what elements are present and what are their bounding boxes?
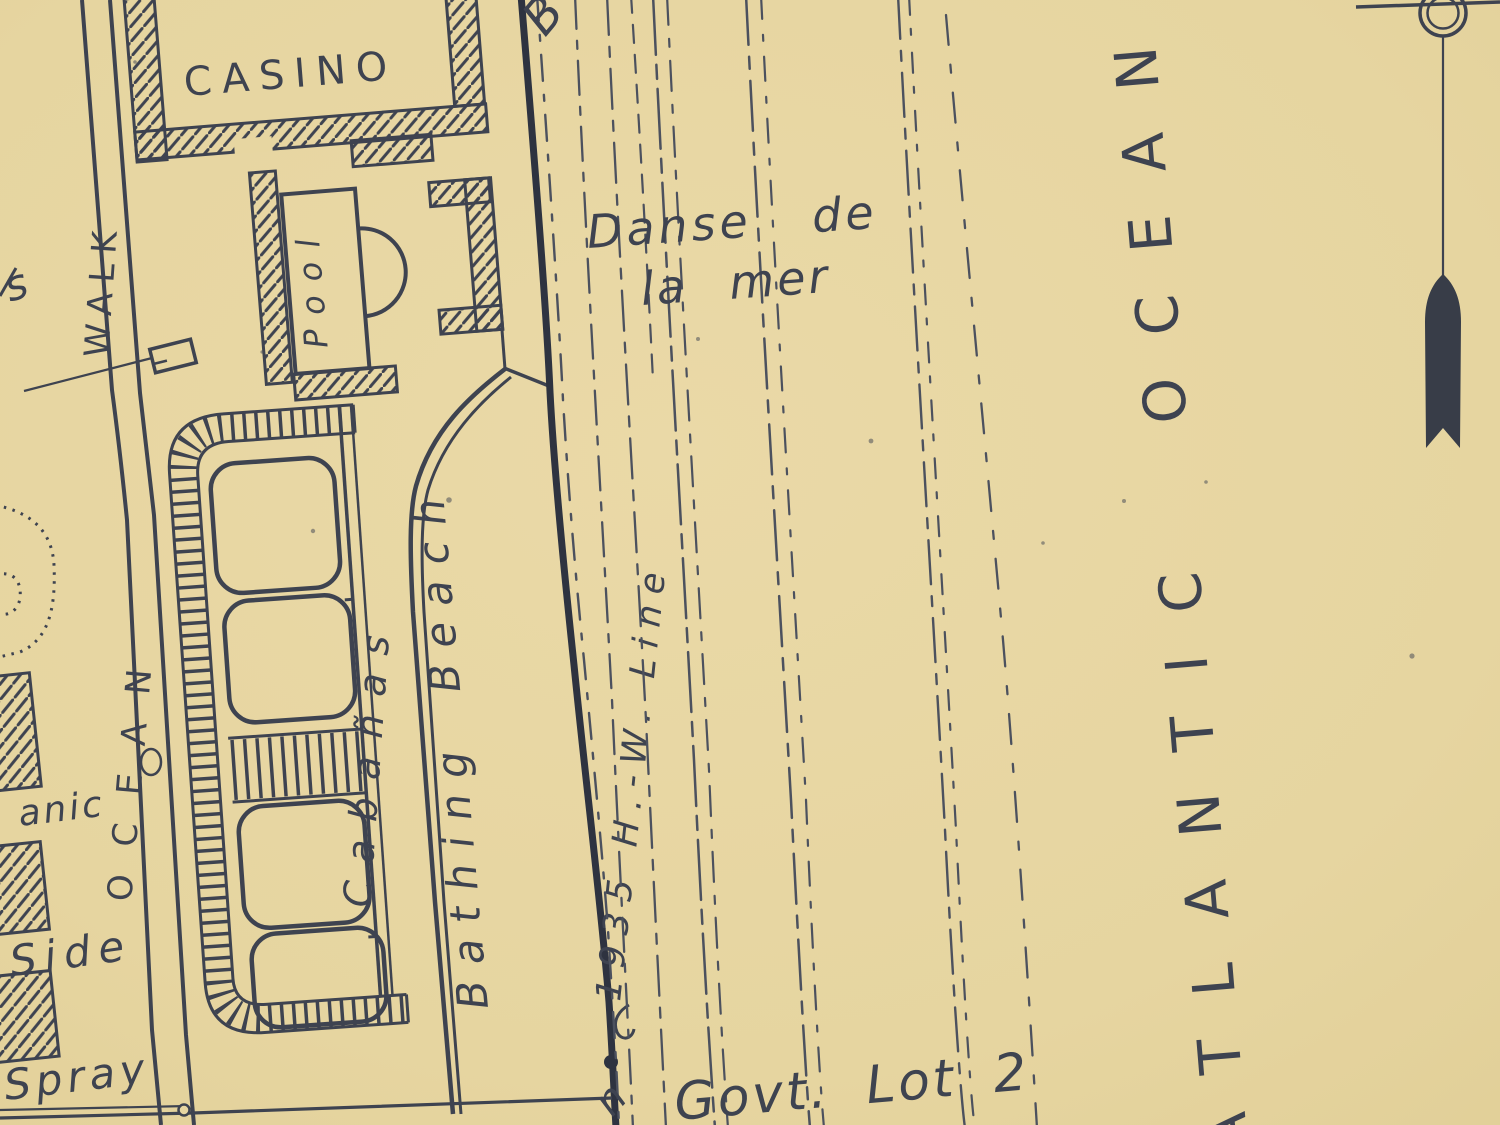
- hatched-building: [0, 842, 49, 936]
- compass-feather: [1425, 274, 1461, 448]
- plat-map: WALK OCEAN s CASINO Pool: [0, 0, 1500, 1125]
- hatched-building: [0, 971, 59, 1064]
- lot-corner-circle: [179, 1105, 190, 1116]
- casino-entrance-gap: [234, 136, 273, 154]
